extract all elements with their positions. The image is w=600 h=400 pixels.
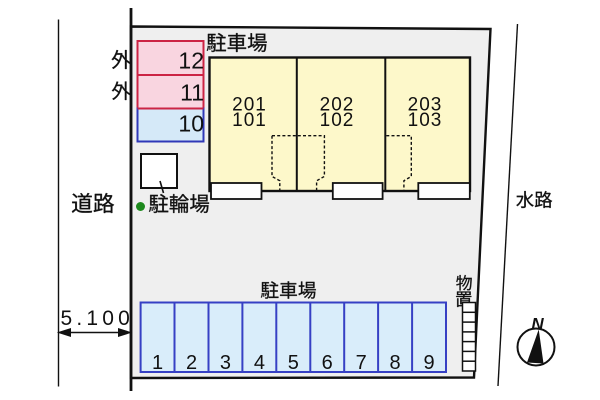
svg-text:102: 102 xyxy=(320,110,355,131)
svg-text:12: 12 xyxy=(178,48,204,74)
svg-text:10: 10 xyxy=(178,111,204,137)
svg-text:2: 2 xyxy=(186,352,197,374)
svg-text:7: 7 xyxy=(356,352,367,374)
svg-text:103: 103 xyxy=(408,110,443,131)
svg-text:11: 11 xyxy=(180,80,204,106)
svg-text:9: 9 xyxy=(423,352,434,374)
svg-text:4: 4 xyxy=(254,352,265,374)
svg-text:6: 6 xyxy=(322,352,333,374)
svg-text:8: 8 xyxy=(390,352,401,374)
svg-text:5: 5 xyxy=(288,352,299,374)
svg-text:1: 1 xyxy=(152,352,163,374)
svg-text:N: N xyxy=(531,315,544,334)
svg-text:5.100: 5.100 xyxy=(61,307,135,330)
svg-text:3: 3 xyxy=(220,352,231,374)
svg-text:101: 101 xyxy=(232,110,267,131)
